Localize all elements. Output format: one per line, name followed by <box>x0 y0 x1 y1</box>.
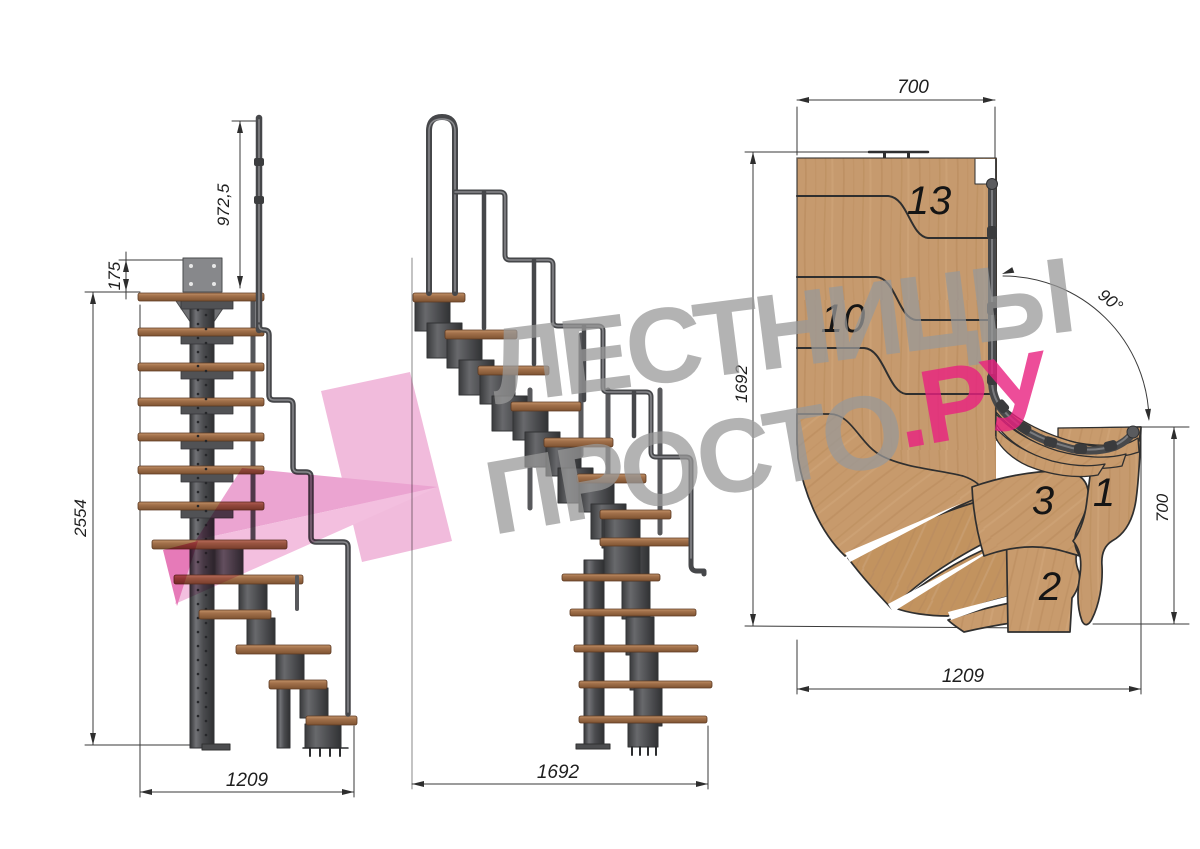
svg-text:972,5: 972,5 <box>214 183 233 226</box>
svg-text:13: 13 <box>907 179 952 223</box>
svg-text:175: 175 <box>105 261 124 290</box>
svg-text:700: 700 <box>897 77 929 98</box>
svg-text:700: 700 <box>1153 493 1172 522</box>
svg-text:3: 3 <box>1032 479 1054 523</box>
svg-text:2554: 2554 <box>71 499 90 538</box>
svg-text:1692: 1692 <box>537 762 580 783</box>
svg-text:1209: 1209 <box>226 770 269 791</box>
svg-text:1209: 1209 <box>942 666 985 687</box>
svg-text:1: 1 <box>1093 471 1115 515</box>
svg-text:2: 2 <box>1038 565 1061 609</box>
